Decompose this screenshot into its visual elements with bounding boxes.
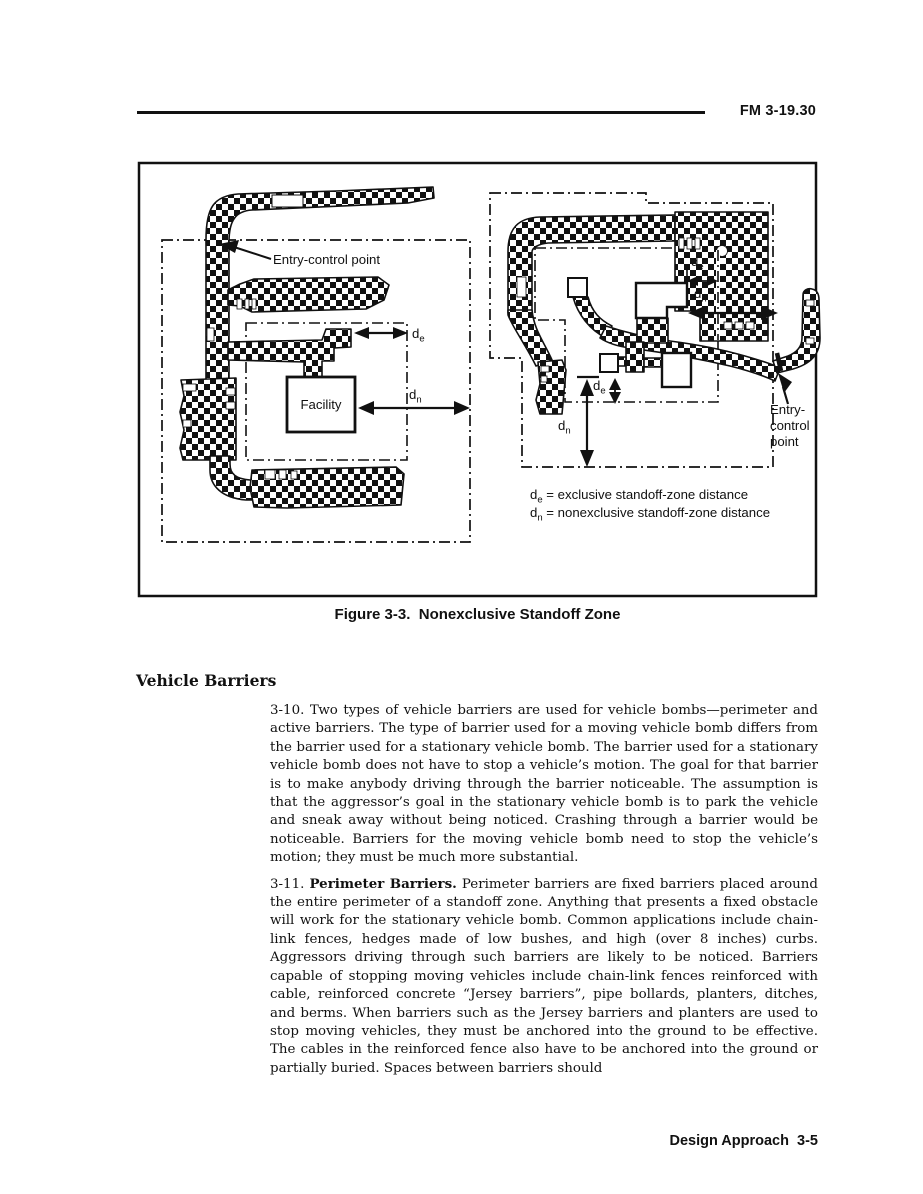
figure-caption: Figure 3-3. Nonexclusive Standoff Zone [138,606,817,623]
svg-text:control: control [770,418,810,433]
entry-control-point-label-left: Entry-control point [273,252,380,267]
svg-text:point: point [770,434,799,449]
document-page: FM 3-19.30 [0,0,923,1194]
section-heading: Vehicle Barriers [136,671,276,690]
entry-control-point-label-right: Entry- [770,402,805,417]
paragraph-3-10: 3-10. Two types of vehicle barriers are … [270,702,818,868]
paragraph-3-11: 3-11. Perimeter Barriers. Perimeter barr… [270,875,818,1078]
figure-legend: de = exclusive standoff-zone distance dn… [530,487,770,524]
body-text: 3-10. Two types of vehicle barriers are … [270,702,818,1078]
page-footer: Design Approach 3-5 [669,1133,818,1149]
facility-label: Facility [300,397,341,412]
